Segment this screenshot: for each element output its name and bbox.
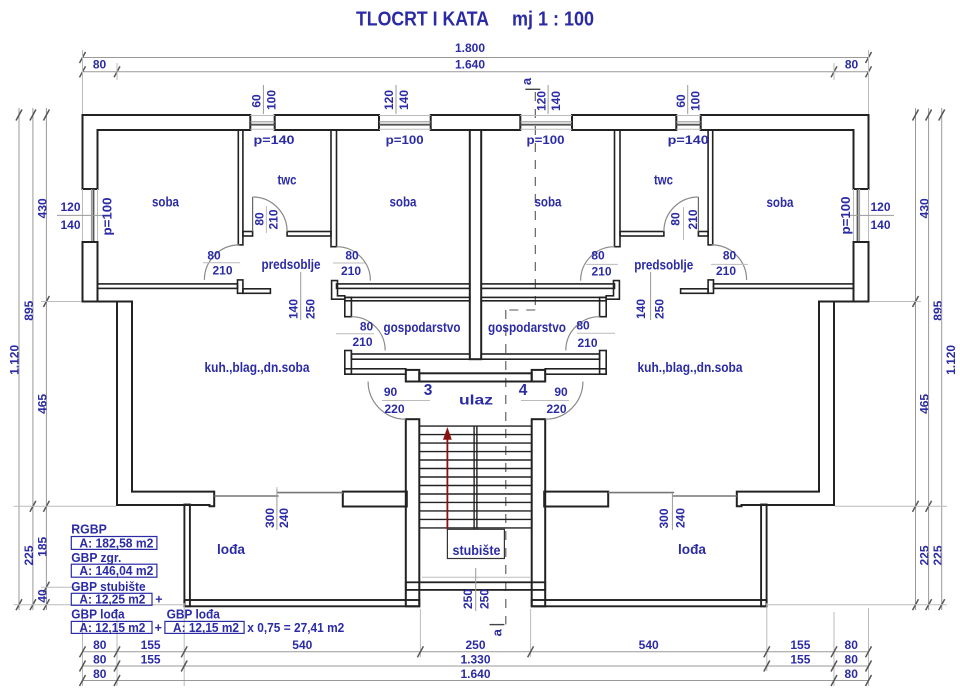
svg-text:240: 240 — [277, 508, 291, 528]
svg-text:80: 80 — [207, 249, 221, 263]
svg-text:soba: soba — [390, 195, 417, 210]
svg-text:GBP zgr.: GBP zgr. — [71, 551, 121, 565]
svg-text:60: 60 — [250, 94, 264, 108]
svg-text:1.640: 1.640 — [460, 667, 490, 681]
svg-text:+: + — [155, 593, 162, 607]
svg-text:140: 140 — [634, 299, 648, 319]
svg-text:80: 80 — [360, 320, 374, 334]
svg-text:ulaz: ulaz — [459, 393, 493, 408]
svg-text:80: 80 — [576, 319, 590, 333]
svg-text:soba: soba — [767, 195, 794, 210]
svg-text:210: 210 — [266, 209, 280, 229]
svg-text:220: 220 — [384, 402, 404, 416]
svg-text:A: 12,15 m2: A: 12,15 m2 — [79, 621, 145, 635]
svg-text:p=100: p=100 — [839, 196, 853, 234]
svg-text:80: 80 — [93, 638, 107, 652]
svg-text:predsoblje: predsoblje — [262, 257, 321, 272]
svg-text:A: 12,25 m2: A: 12,25 m2 — [79, 593, 145, 607]
svg-text:80: 80 — [591, 249, 605, 263]
svg-text:soba: soba — [535, 195, 562, 210]
svg-text:40: 40 — [36, 589, 50, 603]
svg-text:lođa: lođa — [678, 542, 706, 557]
svg-text:140: 140 — [397, 90, 411, 110]
svg-text:stubište: stubište — [453, 543, 501, 558]
svg-text:250: 250 — [304, 299, 318, 319]
svg-text:185: 185 — [36, 536, 50, 556]
svg-text:a: a — [490, 628, 505, 636]
svg-text:540: 540 — [292, 638, 312, 652]
svg-text:60: 60 — [674, 94, 688, 108]
svg-text:A: 146,04 m2: A: 146,04 m2 — [79, 564, 153, 578]
svg-text:250: 250 — [465, 638, 485, 652]
svg-text:220: 220 — [546, 402, 566, 416]
svg-text:gospodarstvo: gospodarstvo — [488, 320, 566, 335]
svg-text:80: 80 — [845, 58, 859, 72]
svg-text:80: 80 — [93, 58, 107, 72]
svg-text:210: 210 — [341, 264, 361, 278]
svg-text:TLOCRT I KATA: TLOCRT I KATA — [356, 9, 489, 31]
svg-text:240: 240 — [674, 508, 688, 528]
svg-text:RGBP: RGBP — [71, 523, 107, 537]
svg-text:540: 540 — [639, 638, 659, 652]
svg-text:430: 430 — [918, 198, 932, 218]
svg-text:A: 12,15 m2: A: 12,15 m2 — [173, 621, 239, 635]
svg-text:140: 140 — [60, 218, 80, 232]
svg-text:120: 120 — [60, 200, 80, 214]
svg-text:155: 155 — [790, 652, 810, 666]
svg-text:80: 80 — [253, 212, 267, 226]
svg-text:80: 80 — [669, 212, 683, 226]
svg-text:1.330: 1.330 — [460, 652, 490, 666]
svg-text:p=140: p=140 — [254, 133, 295, 147]
svg-text:+: + — [155, 621, 162, 635]
svg-text:p=100: p=100 — [101, 197, 115, 235]
svg-text:lođa: lođa — [217, 542, 245, 557]
svg-text:p=100: p=100 — [386, 133, 424, 147]
svg-text:kuh.,blag.,dn.soba: kuh.,blag.,dn.soba — [205, 360, 310, 375]
svg-text:895: 895 — [22, 300, 36, 320]
svg-text:155: 155 — [790, 638, 810, 652]
svg-text:mj 1 : 100: mj 1 : 100 — [512, 9, 594, 31]
svg-text:210: 210 — [212, 264, 232, 278]
svg-text:soba: soba — [152, 195, 179, 210]
svg-text:210: 210 — [591, 265, 611, 279]
svg-text:90: 90 — [384, 385, 398, 399]
svg-text:kuh.,blag.,dn.soba: kuh.,blag.,dn.soba — [638, 360, 743, 375]
svg-text:GBP lođa: GBP lođa — [167, 608, 221, 622]
svg-text:100: 100 — [264, 90, 278, 110]
svg-text:90: 90 — [554, 385, 568, 399]
svg-text:250: 250 — [478, 589, 492, 609]
svg-text:twc: twc — [278, 173, 297, 188]
svg-text:300: 300 — [263, 508, 277, 528]
svg-text:predsoblje: predsoblje — [634, 258, 693, 273]
svg-text:80: 80 — [845, 638, 859, 652]
svg-text:gospodarstvo: gospodarstvo — [384, 320, 461, 335]
svg-text:250: 250 — [461, 589, 475, 609]
svg-text:225: 225 — [918, 545, 932, 565]
svg-text:3: 3 — [424, 382, 433, 399]
svg-text:80: 80 — [845, 652, 859, 666]
svg-text:80: 80 — [93, 667, 107, 681]
svg-text:300: 300 — [657, 508, 671, 528]
svg-text:a: a — [519, 77, 534, 85]
svg-text:210: 210 — [686, 209, 700, 229]
svg-text:1.120: 1.120 — [944, 345, 958, 375]
svg-text:465: 465 — [918, 394, 932, 414]
svg-text:p=100: p=100 — [527, 133, 565, 147]
svg-text:p=140: p=140 — [668, 133, 709, 147]
svg-text:430: 430 — [36, 198, 50, 218]
svg-text:A: 182,58 m2: A: 182,58 m2 — [79, 536, 153, 550]
svg-text:80: 80 — [723, 249, 737, 263]
svg-text:895: 895 — [931, 300, 945, 320]
svg-text:140: 140 — [549, 91, 563, 111]
svg-text:GBP lođa: GBP lođa — [71, 608, 125, 622]
svg-text:1.120: 1.120 — [8, 345, 22, 375]
svg-text:225: 225 — [22, 545, 36, 565]
svg-text:225: 225 — [931, 545, 945, 565]
svg-text:x 0,75 = 27,41 m2: x 0,75 = 27,41 m2 — [247, 621, 344, 635]
svg-text:1.640: 1.640 — [455, 58, 485, 72]
svg-text:210: 210 — [352, 335, 372, 349]
svg-text:250: 250 — [652, 299, 666, 319]
svg-text:140: 140 — [287, 299, 301, 319]
svg-text:210: 210 — [716, 264, 736, 278]
svg-text:4: 4 — [519, 382, 528, 399]
svg-text:twc: twc — [654, 173, 673, 188]
svg-text:100: 100 — [689, 91, 703, 111]
svg-text:140: 140 — [870, 218, 890, 232]
svg-text:1.800: 1.800 — [455, 41, 485, 55]
svg-text:120: 120 — [382, 90, 396, 110]
svg-text:155: 155 — [141, 638, 161, 652]
svg-text:80: 80 — [93, 652, 107, 666]
svg-text:80: 80 — [345, 249, 359, 263]
svg-text:120: 120 — [870, 200, 890, 214]
svg-text:210: 210 — [577, 336, 597, 350]
svg-text:465: 465 — [36, 394, 50, 414]
svg-text:80: 80 — [845, 667, 859, 681]
svg-text:155: 155 — [141, 652, 161, 666]
svg-text:120: 120 — [534, 91, 548, 111]
